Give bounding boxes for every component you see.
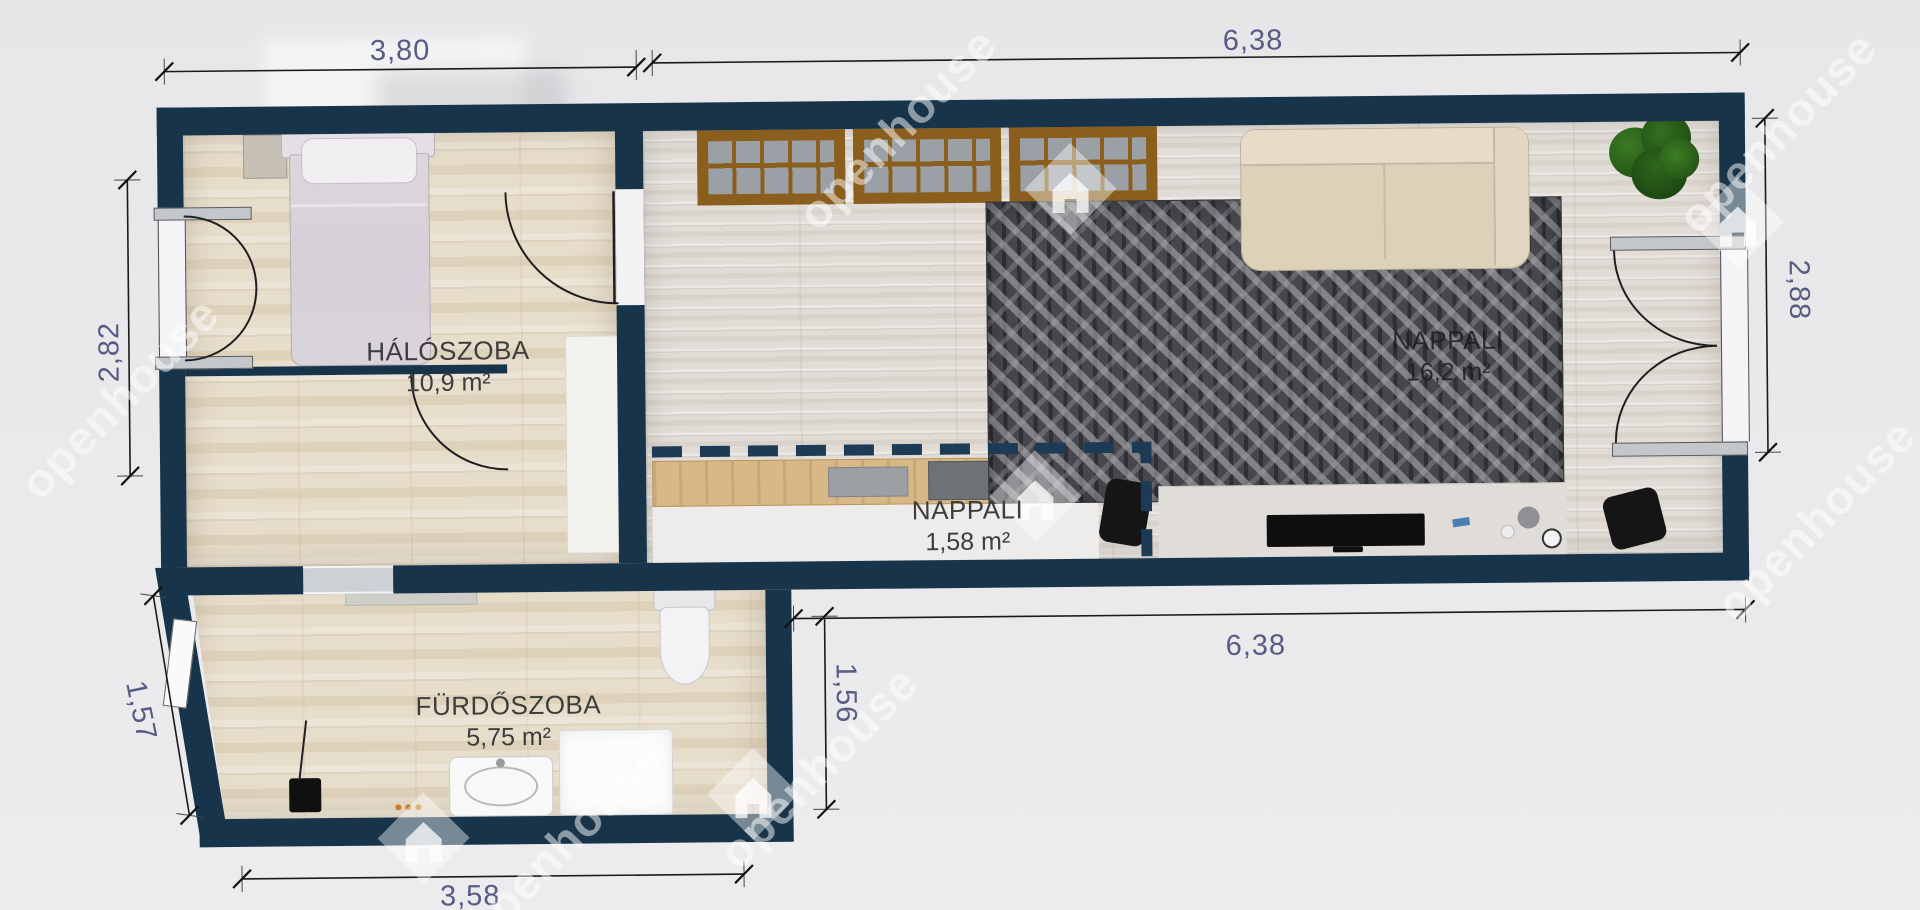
dim-top-bedroom: 3,80 bbox=[370, 35, 431, 69]
dimension-lines bbox=[126, 52, 1772, 880]
dimension-ticks bbox=[117, 43, 1781, 889]
plan-linework bbox=[0, 0, 1920, 910]
room-name: FÜRDŐSZOBA bbox=[415, 689, 601, 722]
plan-canvas: HÁLÓSZOBA 10,9 m² NAPPALI 1,58 m² NAPPAL… bbox=[0, 0, 1920, 910]
room-label-living-main: NAPPALI 16,2 m² bbox=[1392, 325, 1504, 388]
dim-right-living: 2,88 bbox=[1782, 260, 1816, 321]
room-area: 5,75 m² bbox=[416, 721, 602, 753]
watermark-logos bbox=[371, 136, 1790, 885]
room-name: NAPPALI bbox=[912, 494, 1024, 527]
dimension-extensions bbox=[113, 39, 1785, 893]
room-area: 1,58 m² bbox=[912, 526, 1024, 558]
room-area: 16,2 m² bbox=[1392, 356, 1504, 388]
dim-bottom-living: 6,38 bbox=[1225, 629, 1286, 663]
dim-top-living: 6,38 bbox=[1223, 24, 1284, 58]
room-area: 10,9 m² bbox=[366, 367, 530, 399]
room-name: NAPPALI bbox=[1392, 325, 1504, 358]
room-label-living-small: NAPPALI 1,58 m² bbox=[912, 494, 1024, 557]
room-label-bathroom: FÜRDŐSZOBA 5,75 m² bbox=[415, 689, 601, 753]
floor-plan: HÁLÓSZOBA 10,9 m² NAPPALI 1,58 m² NAPPAL… bbox=[0, 0, 1920, 910]
room-label-bedroom: HÁLÓSZOBA 10,9 m² bbox=[366, 335, 530, 399]
room-name: HÁLÓSZOBA bbox=[366, 335, 530, 368]
